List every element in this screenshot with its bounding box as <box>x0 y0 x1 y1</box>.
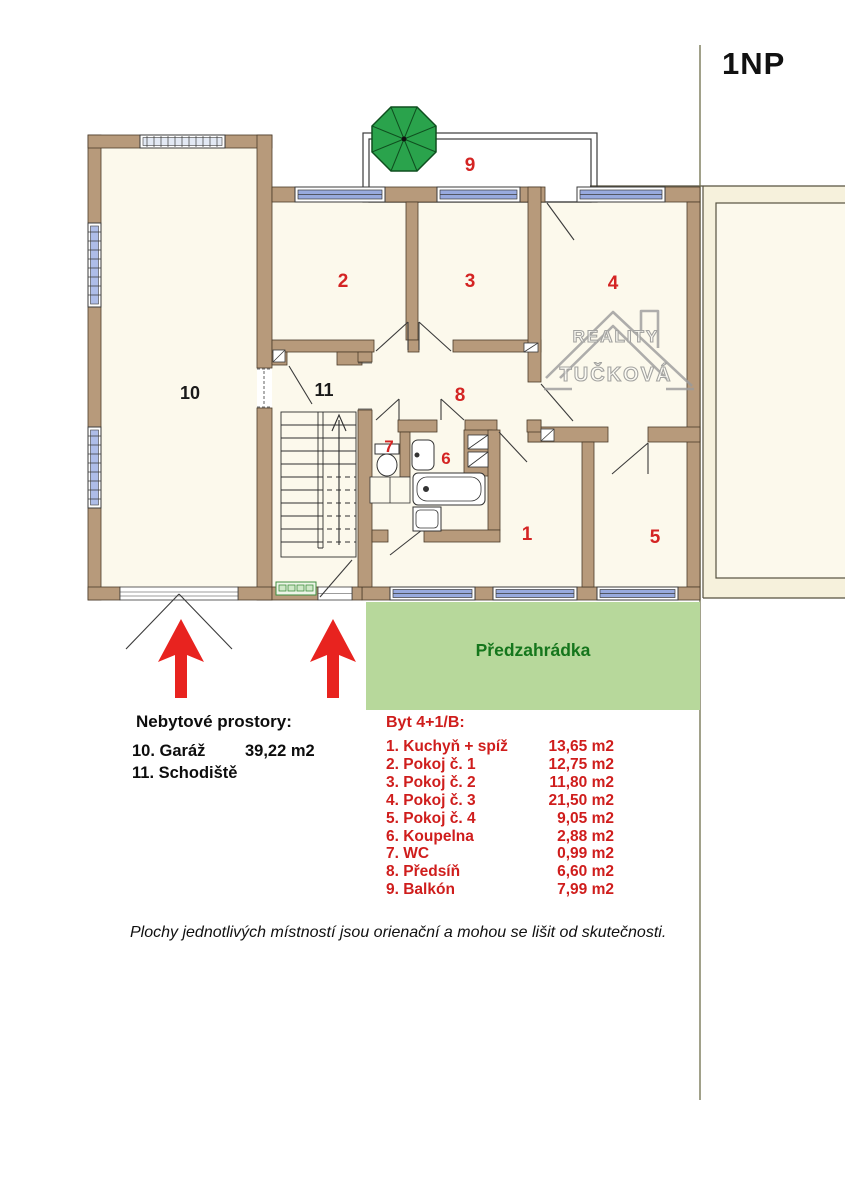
garden-label: Předzahrádka <box>476 640 591 660</box>
legend-room-area: 6,60 m2 <box>544 863 614 881</box>
legend-room-area: 9,05 m2 <box>544 810 614 828</box>
window-kitchen-1 <box>390 587 475 600</box>
window-garage-left-1 <box>88 223 101 307</box>
legend-row: 4. Pokoj č. 3 21,50 m2 <box>386 792 614 810</box>
legend-room-name: 1. Kuchyň + spíž <box>386 738 544 756</box>
room-label-2: 2 <box>338 271 349 292</box>
room-label-11: 11 <box>314 380 333 400</box>
legend-row: 1. Kuchyň + spíž 13,65 m2 <box>386 738 614 756</box>
bathtub-icon <box>413 473 485 505</box>
umbrella-icon <box>372 107 436 171</box>
legend-room-name: 6. Koupelna <box>386 828 544 846</box>
room-label-3: 3 <box>465 271 476 292</box>
front-garden: Předzahrádka <box>366 602 700 710</box>
room-label-4: 4 <box>608 273 619 294</box>
legend-room-area: 13,65 m2 <box>544 738 614 756</box>
wc-counter <box>370 477 410 503</box>
room-label-9: 9 <box>465 155 476 176</box>
legend-room-area: 39,22 m2 <box>245 740 325 762</box>
floor-label: 1NP <box>722 46 785 82</box>
legend-room-area: 21,50 m2 <box>544 792 614 810</box>
room-label-10: 10 <box>180 383 200 403</box>
window-room3 <box>437 187 520 202</box>
legend-room-name: 5. Pokoj č. 4 <box>386 810 544 828</box>
legend-nonres-title: Nebytové prostory: <box>136 712 325 732</box>
legend-room-area: 2,88 m2 <box>544 828 614 846</box>
room-label-6: 6 <box>441 449 450 468</box>
legend-apartment: Byt 4+1/B: 1. Kuchyň + spíž 13,65 m2 2. … <box>386 714 614 899</box>
legend-row: 7. WC 0,99 m2 <box>386 845 614 863</box>
floorplan-page: Předzahrádka <box>0 0 845 1200</box>
legend-row: 5. Pokoj č. 4 9,05 m2 <box>386 810 614 828</box>
legend-nonresidential: Nebytové prostory: 10. Garáž 39,22 m2 11… <box>132 712 325 784</box>
legend-room-area <box>245 762 325 784</box>
arrow-entrance <box>310 619 356 698</box>
room-label-7: 7 <box>384 437 393 456</box>
legend-room-name: 11. Schodiště <box>132 762 245 784</box>
legend-room-area: 0,99 m2 <box>544 845 614 863</box>
entrance-arrows <box>158 619 356 698</box>
watermark-line1: REALITY <box>573 327 660 346</box>
room-label-5: 5 <box>650 527 661 548</box>
legend-row: 11. Schodiště <box>132 762 325 784</box>
room-label-1: 1 <box>522 524 533 545</box>
window-room5 <box>597 587 678 600</box>
window-garage-top <box>140 135 225 148</box>
legend-room-name: 10. Garáž <box>132 740 245 762</box>
legend-room-area: 11,80 m2 <box>544 774 614 792</box>
sink-icon <box>412 440 434 470</box>
legend-row: 10. Garáž 39,22 m2 <box>132 740 325 762</box>
legend-room-name: 4. Pokoj č. 3 <box>386 792 544 810</box>
legend-room-name: 8. Předsíň <box>386 863 544 881</box>
window-garage-left-2 <box>88 427 101 508</box>
legend-row: 9. Balkón 7,99 m2 <box>386 881 614 899</box>
disclaimer-text: Plochy jednotlivých místností jsou orien… <box>130 924 666 942</box>
room-label-8: 8 <box>455 385 466 406</box>
legend-room-name: 7. WC <box>386 845 544 863</box>
door-jambs-garage-stairs <box>257 369 272 407</box>
window-room2 <box>295 187 385 202</box>
legend-row: 3. Pokoj č. 2 11,80 m2 <box>386 774 614 792</box>
window-kitchen-2 <box>493 587 577 600</box>
washing-machine-icon <box>413 507 441 531</box>
legend-room-name: 3. Pokoj č. 2 <box>386 774 544 792</box>
radiator-grate <box>276 582 316 595</box>
window-room4 <box>577 187 665 202</box>
arrow-garage <box>158 619 204 698</box>
legend-room-name: 9. Balkón <box>386 881 544 899</box>
floorplan-drawing: Předzahrádka <box>0 0 845 1200</box>
legend-room-area: 12,75 m2 <box>544 756 614 774</box>
legend-room-name: 2. Pokoj č. 1 <box>386 756 544 774</box>
legend-room-area: 7,99 m2 <box>544 881 614 899</box>
watermark-line2: TUČKOVÁ <box>560 362 673 386</box>
legend-row: 2. Pokoj č. 1 12,75 m2 <box>386 756 614 774</box>
legend-row: 6. Koupelna 2,88 m2 <box>386 828 614 846</box>
legend-apt-title: Byt 4+1/B: <box>386 714 614 732</box>
legend-row: 8. Předsíň 6,60 m2 <box>386 863 614 881</box>
